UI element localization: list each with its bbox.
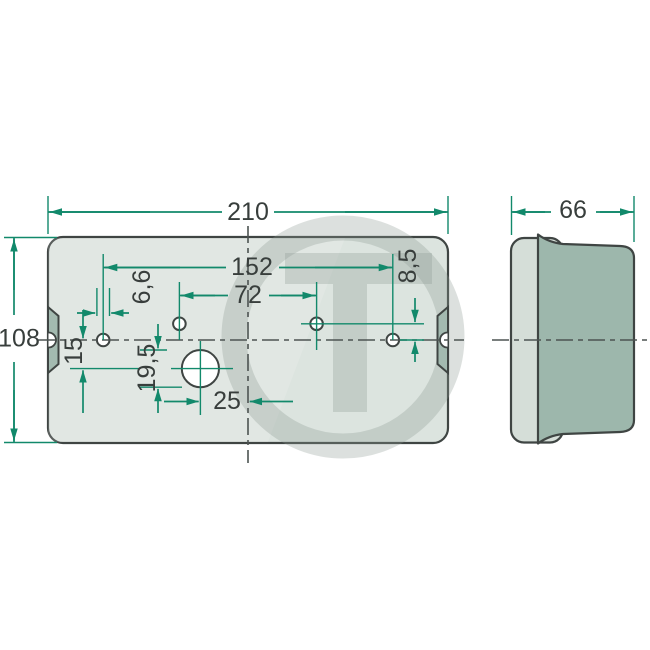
dim-label-25: 25 — [213, 387, 241, 415]
technical-drawing: 210 66 108 152 72 6,6 8,5 15 19,5 25 — [0, 0, 650, 650]
dim-label-210: 210 — [227, 198, 269, 226]
side-view-body — [538, 235, 634, 444]
dim-label-8-5: 8,5 — [394, 249, 422, 284]
dim-label-66: 66 — [559, 196, 587, 224]
dim-label-152: 152 — [231, 253, 273, 281]
watermark-letter-t-stem — [333, 284, 367, 412]
dim-label-15: 15 — [60, 337, 88, 365]
dim-label-72: 72 — [234, 281, 262, 309]
dim-label-108: 108 — [0, 325, 40, 353]
drawing-svg: 210 66 108 152 72 6,6 8,5 15 19,5 25 — [0, 0, 650, 650]
dim-label-6-6: 6,6 — [128, 270, 156, 305]
dim-label-19-5: 19,5 — [133, 344, 161, 393]
